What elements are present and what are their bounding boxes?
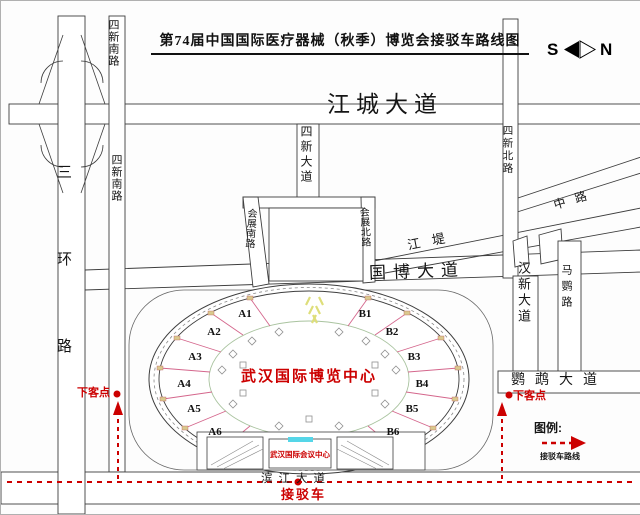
dropoff-marker-left bbox=[114, 391, 121, 398]
hall-label-a6: A6 bbox=[208, 426, 221, 438]
hall-label-b1: B1 bbox=[359, 308, 372, 320]
road-label-sixin-south-1: 四新南路 bbox=[107, 19, 118, 67]
legend-title: 图例: bbox=[534, 419, 562, 436]
hall-label-b5: B5 bbox=[406, 403, 419, 415]
road-label-sixin-ave: 四新大道 bbox=[300, 125, 312, 185]
hall-label-a2: A2 bbox=[207, 326, 220, 338]
compass-south-label: S bbox=[547, 40, 558, 60]
road-label-maying: 马鹦路 bbox=[560, 264, 571, 312]
hall-label-a1: A1 bbox=[238, 308, 251, 320]
hall-label-a3: A3 bbox=[188, 351, 201, 363]
compass-north-label: N bbox=[600, 40, 612, 60]
compass-icon bbox=[564, 41, 595, 58]
road-label-binjiang: 滨江大道 bbox=[261, 474, 331, 486]
road-label-huizhan-south: 会展南路 bbox=[243, 208, 256, 249]
dropoff-label-left: 下客点 bbox=[77, 388, 110, 399]
road-sixin-south bbox=[109, 16, 125, 472]
road-label-sanhuan: 三环路 bbox=[55, 164, 70, 425]
legend-route-label: 接驳车路线 bbox=[540, 451, 580, 462]
road-huizhan-top bbox=[243, 197, 375, 208]
hall-label-b6: B6 bbox=[387, 426, 400, 438]
hall-label-b3: B3 bbox=[408, 351, 421, 363]
dropoff-marker-right bbox=[506, 392, 513, 399]
road-label-guobo: 国博大道 bbox=[369, 261, 466, 281]
legend-route-icon bbox=[542, 436, 586, 450]
shuttle-route-map: 第74届中国国际医疗器械（秋季）博览会接驳车路线图 S N 江城大道 四新南路 … bbox=[0, 0, 640, 515]
road-label-jiangcheng: 江城大道 bbox=[327, 93, 443, 116]
dropoff-label-right: 下客点 bbox=[513, 391, 546, 402]
map-canvas bbox=[1, 1, 640, 514]
entrance-highlight-bar bbox=[288, 437, 313, 442]
conference-center-label: 武汉国际会议中心 bbox=[270, 451, 330, 459]
road-label-sixin-north: 四新北路 bbox=[501, 125, 512, 175]
road-label-huizhan-north: 会展北路 bbox=[357, 207, 369, 247]
route-arrow-right bbox=[497, 402, 507, 416]
hall-label-a5: A5 bbox=[187, 403, 200, 415]
map-title: 第74届中国国际医疗器械（秋季）博览会接驳车路线图 bbox=[151, 30, 529, 55]
block-huizhan bbox=[269, 208, 363, 281]
road-label-hanxin: 汉新大道 bbox=[517, 261, 530, 325]
hall-label-a4: A4 bbox=[177, 378, 190, 390]
hall-label-b2: B2 bbox=[386, 326, 399, 338]
hall-label-b4: B4 bbox=[416, 378, 429, 390]
road-label-sixin-south-2: 四新南路 bbox=[110, 154, 121, 202]
expo-center-label: 武汉国际博览中心 bbox=[241, 370, 377, 385]
road-label-yingwu: 鹦鹉大道 bbox=[511, 374, 607, 388]
shuttle-bus-label: 接驳车 bbox=[281, 488, 326, 501]
road-jiangcheng bbox=[9, 104, 640, 124]
